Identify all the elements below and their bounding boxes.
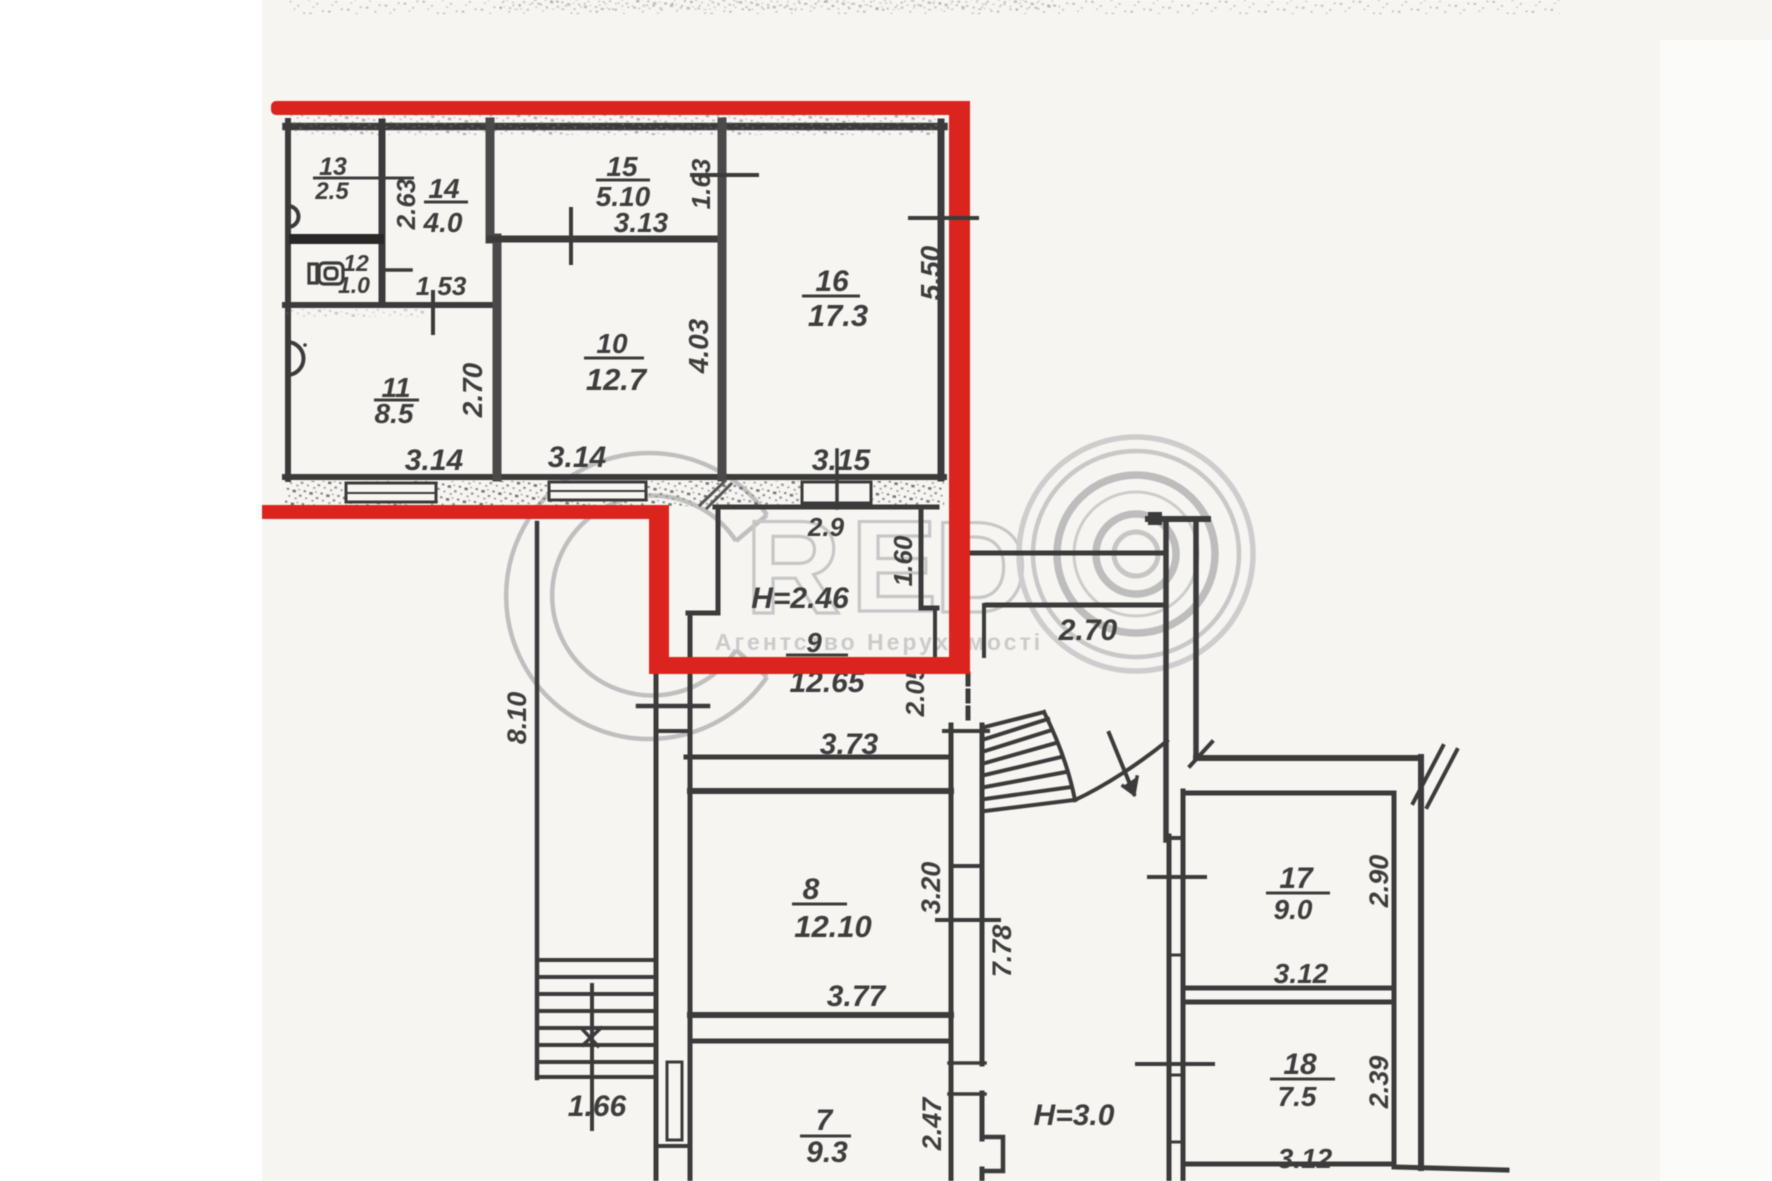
svg-text:3.20: 3.20 [916,862,946,915]
svg-text:7.5: 7.5 [1278,1081,1317,1112]
svg-text:9.0: 9.0 [1274,894,1313,925]
svg-text:9.3: 9.3 [806,1136,848,1169]
svg-text:4.03: 4.03 [683,318,714,374]
svg-text:3.14: 3.14 [548,441,607,474]
svg-text:2.9: 2.9 [807,512,845,542]
svg-text:Н=2.46: Н=2.46 [751,582,849,615]
svg-text:7: 7 [816,1104,834,1137]
svg-text:8.5: 8.5 [375,398,414,429]
svg-text:18: 18 [1283,1048,1317,1081]
svg-text:15: 15 [606,151,638,182]
svg-text:3.73: 3.73 [820,728,879,761]
svg-text:17: 17 [1279,862,1314,895]
svg-text:14: 14 [428,173,460,204]
svg-text:2.70: 2.70 [1058,614,1118,647]
svg-text:7.78: 7.78 [987,925,1017,978]
svg-text:3.14: 3.14 [405,444,464,477]
svg-text:5.50: 5.50 [915,245,946,300]
svg-text:10: 10 [596,328,628,359]
svg-text:3.12: 3.12 [1278,1143,1333,1174]
svg-text:17.3: 17.3 [808,298,868,333]
svg-text:2.90: 2.90 [1364,855,1394,909]
svg-text:3.12: 3.12 [1274,958,1329,989]
svg-text:Агентство Нерухомості: Агентство Нерухомості [715,629,1043,655]
svg-text:2.47: 2.47 [917,1096,947,1152]
svg-text:3.77: 3.77 [827,980,887,1013]
svg-text:1.53: 1.53 [416,271,467,301]
svg-text:3.15: 3.15 [812,444,872,477]
svg-text:2.5: 2.5 [314,178,349,205]
svg-text:8: 8 [803,873,820,906]
svg-text:9: 9 [806,627,822,658]
svg-text:2.39: 2.39 [1364,1056,1394,1110]
svg-text:1.63: 1.63 [686,158,716,209]
svg-text:2.70: 2.70 [457,362,488,418]
svg-text:2.63: 2.63 [391,178,421,230]
svg-text:12.10: 12.10 [794,909,872,944]
svg-text:1.66: 1.66 [568,1090,627,1123]
svg-text:1.0: 1.0 [338,272,370,298]
svg-text:4.0: 4.0 [423,207,463,238]
svg-text:8.10: 8.10 [502,692,532,745]
svg-text:12.7: 12.7 [586,362,648,397]
svg-text:1.60: 1.60 [888,535,918,586]
svg-text:16: 16 [815,265,849,298]
svg-text:3.13: 3.13 [614,207,669,238]
svg-text:D: D [934,494,1028,640]
svg-text:Н=3.0: Н=3.0 [1034,1099,1115,1132]
